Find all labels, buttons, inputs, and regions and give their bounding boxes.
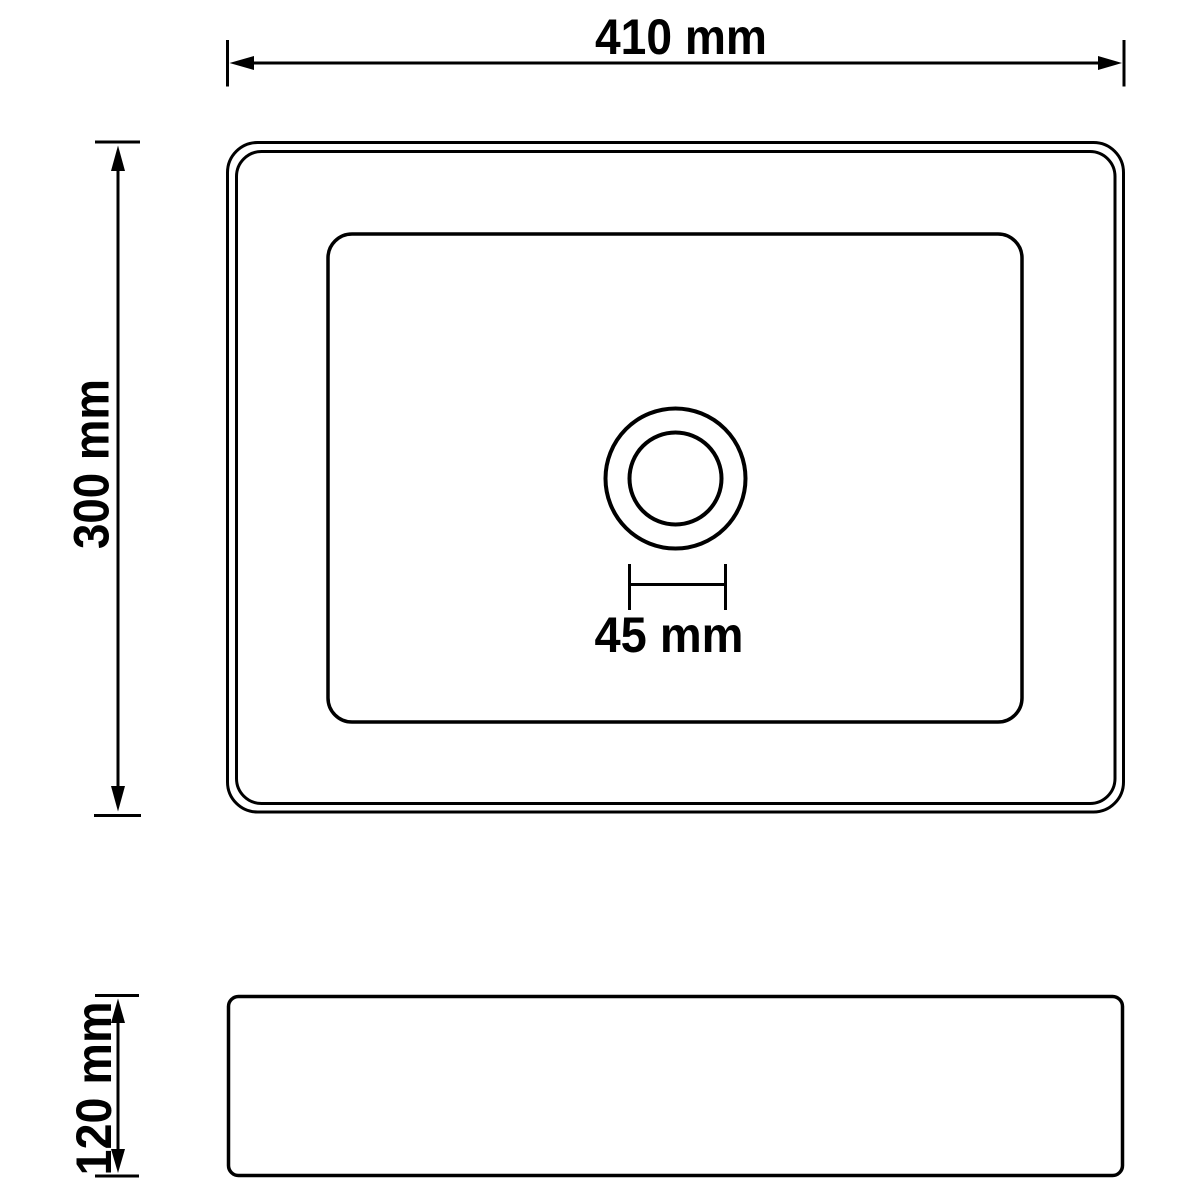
svg-text:300 mm: 300 mm [64,379,120,549]
svg-text:410 mm: 410 mm [595,9,767,65]
svg-text:45 mm: 45 mm [595,607,744,663]
